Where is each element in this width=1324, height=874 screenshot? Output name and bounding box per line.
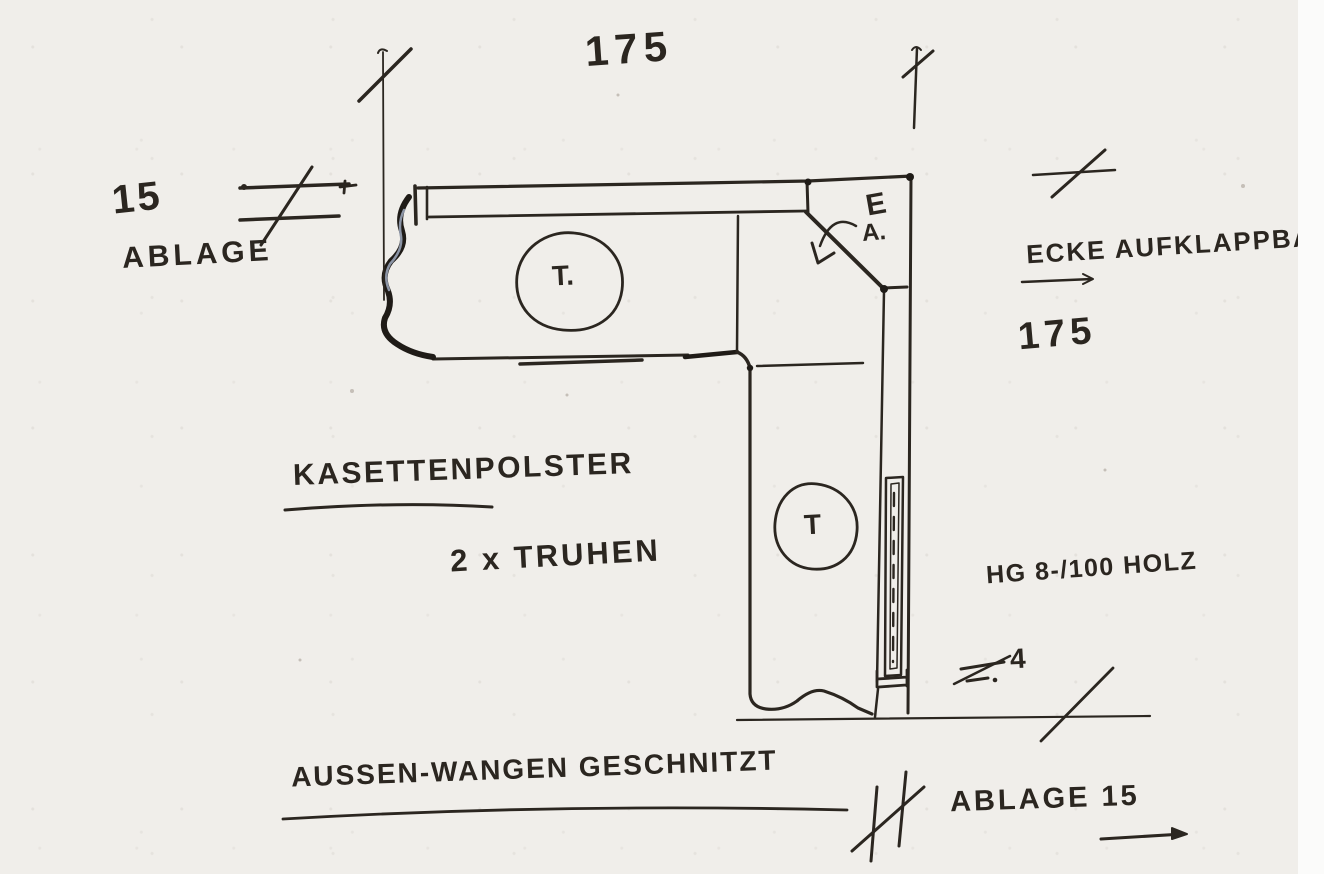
right-edge-outer — [908, 177, 911, 713]
slat-foot — [877, 670, 908, 687]
outer-panels-underline — [283, 808, 847, 819]
bottom-double-tick — [871, 772, 906, 861]
corner-tick-line — [1033, 170, 1115, 175]
break-line — [384, 197, 433, 357]
wood-slat — [877, 477, 908, 687]
joint-dot — [747, 365, 753, 371]
scan-edge — [1298, 0, 1324, 874]
corner-underline — [1022, 279, 1092, 282]
chest-divider — [737, 216, 738, 351]
sketch-page: 175 15 ABLAGE ECKE AUFKLAPPBAR 175 E A. … — [0, 0, 1324, 874]
joint-dot — [805, 179, 812, 186]
dim-top-width: 175 — [584, 25, 675, 73]
right-bench-left-edge-and-bottom — [750, 368, 872, 714]
slat-hatch — [893, 493, 894, 662]
panel-thickness-value: 4 — [1009, 645, 1026, 674]
bottom-dim-line — [737, 716, 1150, 720]
flip-arrow-head — [812, 243, 834, 263]
top-bench-front-edge — [433, 355, 688, 359]
cushion-underline — [285, 505, 492, 510]
right-bench-inner-top — [757, 363, 863, 366]
joint-dot — [906, 173, 914, 181]
dim-dot — [241, 184, 247, 190]
top-left-slash — [359, 49, 411, 101]
bottom-double-tick-slash — [852, 787, 924, 851]
shelf-strip-inner-edge — [429, 211, 806, 217]
top-right-extension — [914, 48, 917, 128]
bottom-dim-slash — [1041, 668, 1113, 741]
bottom-shelf-label: ABLAGE 15 — [950, 782, 1141, 818]
bottom-tick — [875, 689, 878, 717]
top-right-slash — [903, 51, 933, 77]
left-extension-line — [383, 52, 384, 300]
left-thickness-lines — [240, 184, 349, 220]
chest-top-label: T. — [551, 261, 574, 290]
corner-bench-drawing — [0, 0, 1324, 874]
corner-mark-a: A. — [861, 220, 887, 246]
left-end-bracket — [415, 186, 416, 224]
dim-shelf-depth: 15 — [110, 175, 164, 220]
top-bench-front-edge-heavy — [685, 352, 737, 357]
break-line-ink — [384, 197, 433, 357]
top-edge-outer — [418, 176, 912, 188]
joint-dot — [880, 285, 888, 293]
dimension-marks — [240, 47, 1150, 861]
dim-dot — [993, 678, 998, 683]
corner-step — [807, 181, 808, 213]
bottom-shelf-underline-arrow — [1172, 828, 1187, 839]
top-bench-front-edge-2 — [520, 360, 642, 364]
bottom-shelf-underline — [1101, 834, 1183, 839]
dim-right-height: 175 — [1016, 312, 1097, 357]
bench-outline — [340, 173, 914, 717]
right-edge-inner — [877, 291, 884, 682]
chest-right-label: T — [803, 511, 822, 540]
